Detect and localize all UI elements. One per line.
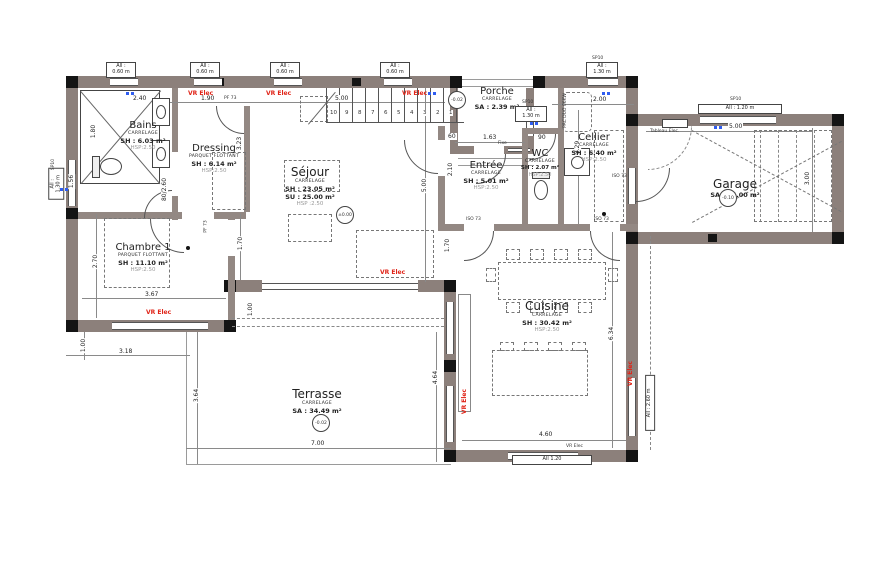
counter-unit-outline bbox=[500, 342, 514, 351]
dimension-label: 90 bbox=[537, 134, 547, 141]
window-cuisine-right bbox=[628, 378, 636, 436]
parking-outline bbox=[754, 130, 832, 222]
window-label-line2: 1.30 m bbox=[522, 113, 540, 119]
room-name: Porche bbox=[464, 86, 530, 97]
dimension-label: 1.80 bbox=[90, 124, 97, 139]
dimension-label: 5.00 bbox=[421, 178, 428, 193]
window-label: All : 1.30 m bbox=[515, 106, 547, 122]
wall-garage-right bbox=[832, 114, 844, 244]
wall-porch-bottom-a bbox=[450, 146, 474, 154]
window-label: All : 1.20 m bbox=[698, 104, 782, 114]
window-label: All : 0.60 m bbox=[190, 62, 220, 78]
room-name: Bains bbox=[106, 120, 180, 131]
fixe-label: Fixe bbox=[498, 141, 507, 146]
stair-step-number: 3 bbox=[423, 110, 427, 116]
window-label-text: All : 1.20 m bbox=[726, 105, 755, 111]
door-swing-dressing bbox=[216, 106, 244, 134]
chair-outline bbox=[554, 249, 568, 260]
door-swing-garage bbox=[636, 168, 670, 202]
roof-overhang-line bbox=[232, 318, 444, 319]
dimension-label: 1.00 bbox=[247, 302, 254, 317]
post bbox=[352, 78, 361, 86]
stair-step-number: 4 bbox=[410, 110, 414, 116]
stair-step-number: 1 bbox=[449, 110, 453, 116]
chair-outline bbox=[578, 249, 592, 260]
room-name: Cuisine bbox=[500, 300, 594, 313]
porch-opening-line bbox=[462, 79, 533, 80]
sp10-tag: SP10 bbox=[522, 100, 533, 105]
window-label: All : 1.30 m bbox=[586, 62, 618, 78]
sp10-tag: SP10 bbox=[51, 159, 56, 170]
room-area: SH : 23.05 m² bbox=[262, 185, 358, 193]
door-tag: PF 73 bbox=[204, 220, 209, 232]
vr-elec-label: VR Elec bbox=[380, 269, 405, 276]
toilet-icon bbox=[534, 180, 548, 200]
window-sensor-icon bbox=[602, 92, 610, 95]
dim-line bbox=[462, 440, 626, 441]
level-value: -0.02 bbox=[451, 98, 463, 103]
room-label-chambre: Chambre 1 PARQUET FLOTTANT SH : 11.10 m²… bbox=[100, 242, 186, 274]
room-label-cuisine: Cuisine CARRELAGE SH : 30.42 m² HSP:2.50 bbox=[500, 300, 594, 334]
chair-outline bbox=[530, 249, 544, 260]
room-height: HSP:2.50 bbox=[556, 157, 632, 164]
door-tag: ISO 73 bbox=[466, 217, 481, 222]
post bbox=[708, 234, 717, 242]
door-tag: ISO 73 bbox=[612, 174, 627, 179]
stair-step-number: 2 bbox=[436, 110, 440, 116]
wall-garage-bottom bbox=[638, 232, 844, 244]
stair-step-number: 10 bbox=[330, 110, 337, 116]
furniture-outline bbox=[288, 214, 332, 242]
sp10-tag: SP10 bbox=[730, 97, 741, 102]
window-label-line2: 0.60 m bbox=[276, 69, 294, 75]
window-label-line2: 0.60 m bbox=[112, 69, 130, 75]
door-swing-cuisine-1 bbox=[464, 231, 494, 261]
post bbox=[626, 232, 638, 244]
level-marker-garage: -0.10 bbox=[719, 189, 737, 207]
post bbox=[444, 450, 456, 462]
room-name: Terrasse bbox=[270, 388, 364, 401]
heat-pump-label: PAC DUO 06KW bbox=[563, 93, 568, 128]
vr-elec-label: VR Elec bbox=[461, 389, 468, 414]
vr-elec-label: VR Elec bbox=[627, 361, 634, 386]
room-label-sejour: Séjour CARRELAGE SH : 23.05 m² SU : 25.0… bbox=[262, 166, 358, 208]
vr-elec-label: VR Elec bbox=[188, 90, 213, 97]
room-name: Cellier bbox=[556, 132, 632, 143]
window bbox=[194, 78, 222, 86]
vr-elec-label: VR Elec bbox=[266, 90, 291, 97]
vr-elec-label: VR Elec bbox=[146, 309, 171, 316]
door-swing-cuisine-2 bbox=[590, 231, 620, 261]
level-marker-terrasse: -0.02 bbox=[312, 414, 330, 432]
room-height: HSP:2.50 bbox=[100, 267, 186, 274]
dimension-label: 5.00 bbox=[728, 123, 743, 130]
reference-dot bbox=[186, 246, 190, 250]
dimension-label: 2.00 bbox=[592, 96, 607, 103]
chair-outline bbox=[506, 249, 520, 260]
room-area: SH : 30.42 m² bbox=[500, 319, 594, 327]
partition-sejour-entree-a bbox=[438, 126, 445, 140]
counter-unit-outline bbox=[548, 342, 562, 351]
door-tag: ISO 73 bbox=[594, 217, 609, 222]
dim-line bbox=[455, 142, 525, 143]
window-label-line2: 0.60 m bbox=[386, 69, 404, 75]
dim-line bbox=[186, 448, 451, 449]
post bbox=[444, 360, 456, 372]
counter-unit-outline bbox=[524, 342, 538, 351]
room-label-cellier: Cellier CARRELAGE SH : 6.40 m² HSP:2.50 bbox=[556, 132, 632, 164]
post bbox=[626, 76, 638, 88]
dimension-label: 3.18 bbox=[118, 348, 133, 355]
post bbox=[626, 450, 638, 462]
room-height: HSP:2.50 bbox=[170, 168, 258, 175]
window-label: All : 1.30 m bbox=[48, 168, 64, 200]
terrasse-edge-left bbox=[186, 332, 187, 464]
post bbox=[832, 232, 844, 244]
room-area: SH : 6.40 m² bbox=[556, 149, 632, 157]
bay-pier-right bbox=[418, 280, 444, 292]
stair-step-number: 7 bbox=[371, 110, 375, 116]
dimension-label: 1.70 bbox=[444, 238, 451, 253]
staircase bbox=[326, 88, 464, 123]
dimension-label: 80/2.60 bbox=[161, 177, 168, 202]
stair-step-number: 9 bbox=[345, 110, 349, 116]
window-sensor-icon bbox=[126, 92, 134, 95]
toilet-tank-icon bbox=[92, 156, 100, 178]
floor-plan: 2.40 1.90 5.00 1.63 2.00 5.00 3.00 1.80 … bbox=[0, 0, 884, 570]
level-value: -0.10 bbox=[722, 196, 734, 201]
post bbox=[66, 76, 78, 88]
post bbox=[533, 76, 545, 88]
dimension-label: 3.00 bbox=[804, 171, 811, 186]
level-value: ±0.00 bbox=[338, 213, 352, 218]
dimension-label: 2.40 bbox=[132, 95, 147, 102]
window-label-line2: 1.30 m bbox=[593, 69, 611, 75]
post bbox=[626, 114, 638, 126]
room-height: HSP:2.50 bbox=[500, 327, 594, 334]
chair-outline bbox=[486, 268, 496, 282]
dimension-label: 4.60 bbox=[538, 431, 553, 438]
window-sensor-icon bbox=[60, 188, 68, 191]
partition-cuisine-top-c bbox=[620, 224, 638, 231]
window-label-text: All 1.20 bbox=[543, 456, 562, 462]
window-cuisine-terrasse-1 bbox=[446, 302, 454, 354]
level-marker-porche: -0.02 bbox=[448, 91, 466, 109]
post bbox=[66, 320, 78, 332]
stair-step-number: 6 bbox=[384, 110, 388, 116]
level-marker-sejour: ±0.00 bbox=[336, 206, 354, 224]
counter-unit-outline bbox=[572, 342, 586, 351]
window bbox=[274, 78, 302, 86]
room-height: HSP:2.50 bbox=[516, 172, 564, 178]
level-value: -0.02 bbox=[315, 421, 327, 426]
toilet-icon bbox=[100, 158, 122, 175]
dining-table-outline bbox=[498, 262, 606, 300]
dimension-label: 1.70 bbox=[237, 236, 244, 251]
dimension-label: 1.00 bbox=[80, 338, 87, 353]
room-area: SH : 6.03 m² bbox=[106, 137, 180, 145]
window-sensor-icon bbox=[530, 122, 538, 125]
room-label-entree: Entrée CARRELAGE SH : 5.01 m² HSP:2.50 bbox=[448, 160, 524, 192]
window-cellier bbox=[588, 78, 618, 86]
window-label: All : 0.60 m bbox=[106, 62, 136, 78]
room-name: Séjour bbox=[262, 166, 358, 179]
window-label: All : 2.60 m bbox=[645, 375, 655, 431]
room-label-dressing: Dressing PARQUET FLOTTANT SH : 6.14 m² H… bbox=[170, 143, 258, 175]
dimension-label: 1.56 bbox=[68, 174, 75, 189]
dimension-label: 1.63 bbox=[482, 134, 497, 141]
door-tag: PF 73 bbox=[224, 96, 236, 101]
chair-outline bbox=[608, 268, 618, 282]
room-name: Garage bbox=[692, 178, 778, 191]
vr-elec-label: VR Elec bbox=[402, 90, 427, 97]
bay-pier-left bbox=[236, 280, 262, 292]
post bbox=[832, 114, 844, 126]
dimension-label: 3.64 bbox=[193, 388, 200, 403]
post bbox=[66, 208, 78, 219]
window-label: All : 0.60 m bbox=[270, 62, 300, 78]
room-label-terrasse: Terrasse CARRELAGE SA : 34.49 m² bbox=[270, 388, 364, 415]
partition-cuisine-top-a bbox=[438, 224, 464, 231]
dimension-label: 2.70 bbox=[92, 254, 99, 269]
vr-elec-label-small: VR Elec bbox=[566, 444, 583, 449]
dimension-label: 5.00 bbox=[334, 95, 349, 102]
room-height: HSP:2.50 bbox=[448, 185, 524, 192]
room-name: Entrée bbox=[448, 160, 524, 171]
room-area2: SU : 25.00 m² bbox=[262, 193, 358, 201]
sp10-tag: SP10 bbox=[592, 56, 603, 61]
room-area: SH : 6.14 m² bbox=[170, 160, 258, 168]
stair-step-number: 5 bbox=[397, 110, 401, 116]
dimension-label: 3.67 bbox=[144, 291, 159, 298]
window bbox=[384, 78, 412, 86]
terrasse-edge-bottom bbox=[186, 464, 451, 465]
room-name: Chambre 1 bbox=[100, 242, 186, 253]
dimension-label: 6.34 bbox=[608, 326, 615, 341]
window-sensor-icon bbox=[714, 126, 722, 129]
room-name: Dressing bbox=[170, 143, 258, 154]
tableau-elec-label: Tableau Elec. bbox=[650, 129, 679, 134]
partition-chambre-sejour-a bbox=[228, 212, 235, 220]
room-label-bains: Bains CARRELAGE SH : 6.03 m² HSP:2.50 bbox=[106, 120, 180, 152]
window bbox=[110, 78, 138, 86]
dimension-label: 4.64 bbox=[432, 370, 439, 385]
bay-window-sejour bbox=[262, 283, 418, 290]
window-label: All : 0.60 m bbox=[380, 62, 410, 78]
partition-sejour-entree-b bbox=[438, 176, 445, 230]
door-swing-sejour bbox=[404, 140, 438, 174]
room-height: HSP:2.50 bbox=[106, 145, 180, 152]
stair-step-number: 8 bbox=[358, 110, 362, 116]
room-area: SH : 2.07 m² bbox=[516, 165, 564, 172]
door-gap-garage bbox=[628, 168, 636, 204]
partition-cuisine-top-b bbox=[494, 224, 590, 231]
window-label-text: All : 2.60 m bbox=[646, 389, 652, 418]
window-label-line2: 0.60 m bbox=[196, 69, 214, 75]
window-chambre bbox=[112, 322, 208, 330]
post bbox=[450, 76, 462, 88]
window-cuisine-terrasse-2 bbox=[446, 386, 454, 442]
partition-chambre-sejour-b bbox=[228, 256, 235, 320]
dim-line bbox=[436, 332, 437, 462]
kitchen-island-outline bbox=[492, 350, 588, 396]
window-sensor-icon bbox=[428, 92, 436, 95]
room-area: SH : 11.10 m² bbox=[100, 259, 186, 267]
dimension-label: 7.00 bbox=[310, 440, 325, 447]
post bbox=[444, 280, 456, 292]
dim-line bbox=[82, 298, 226, 299]
room-area: SH : 5.01 m² bbox=[448, 177, 524, 185]
window-label: All 1.20 bbox=[512, 455, 592, 465]
roof-overhang-line bbox=[232, 326, 444, 327]
dimension-label: 60 bbox=[447, 133, 457, 140]
